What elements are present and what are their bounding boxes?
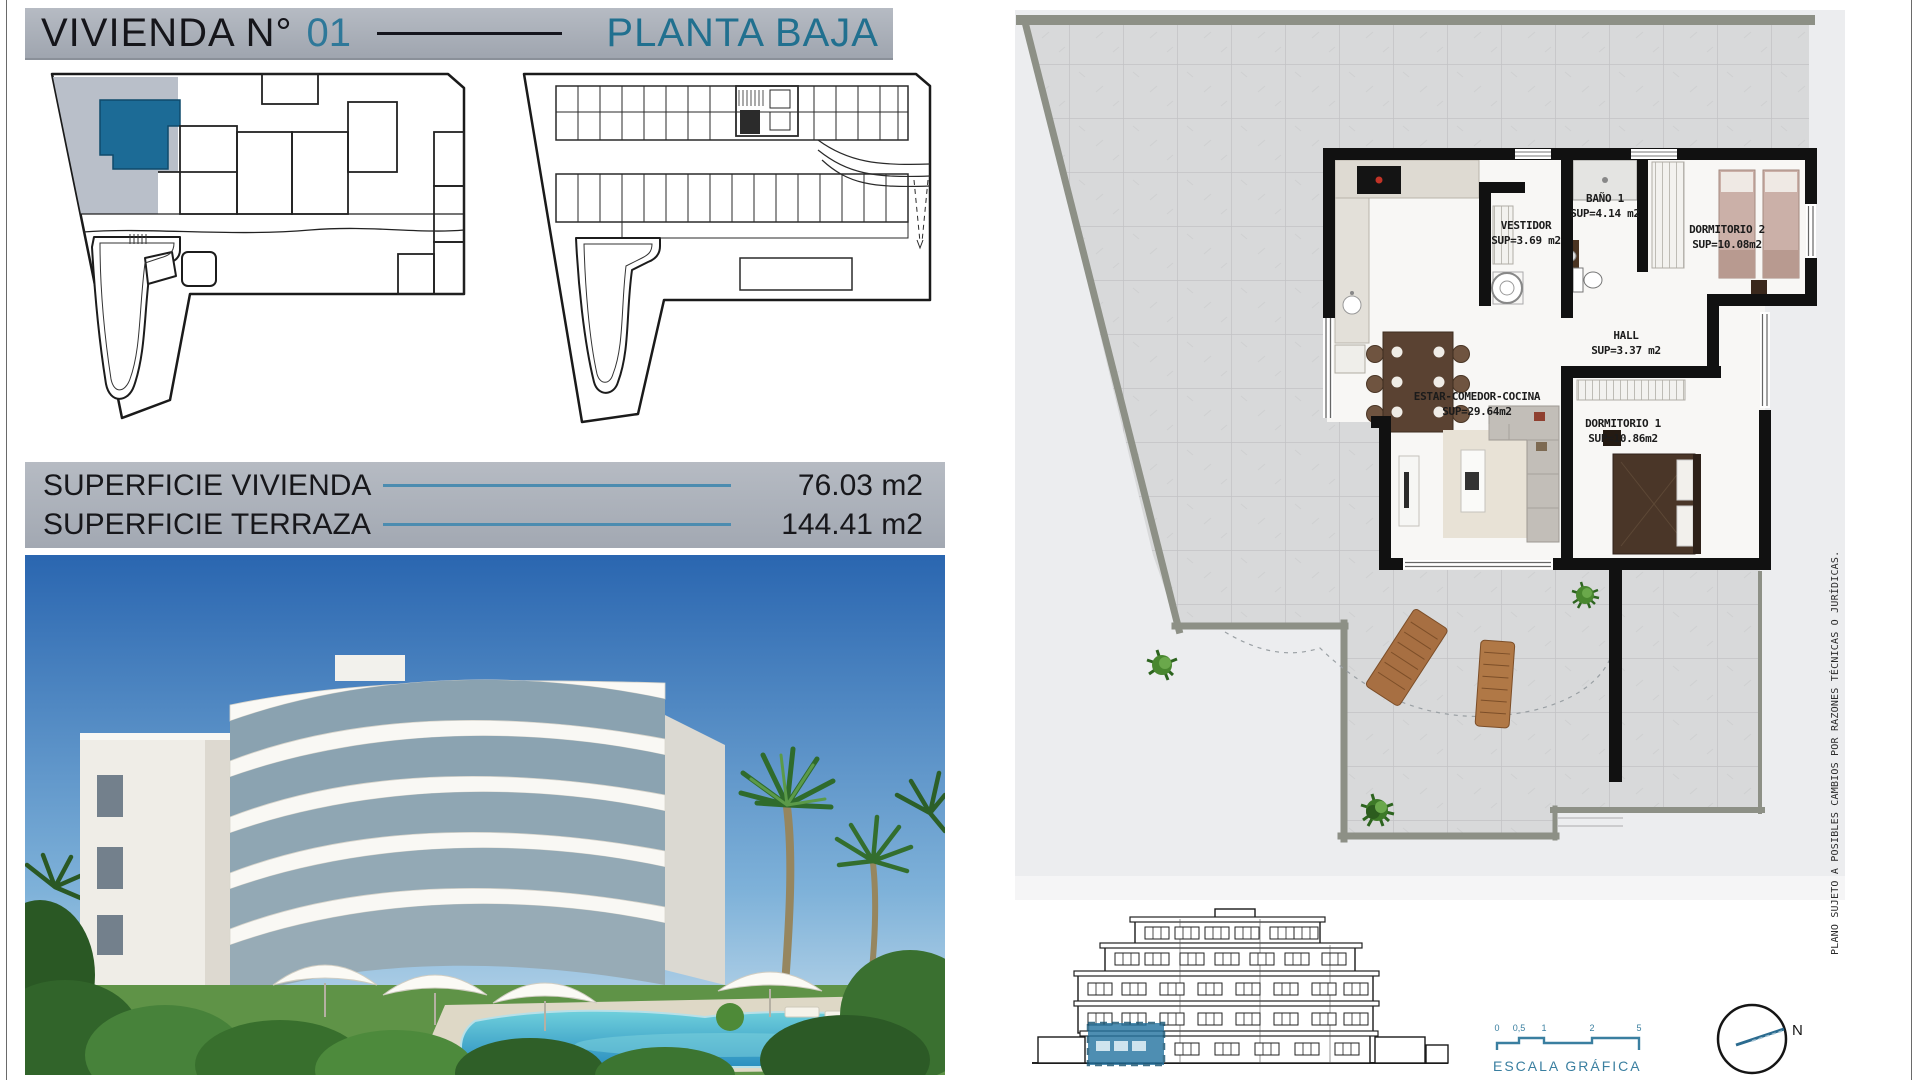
building-photo	[25, 555, 945, 1075]
unit-title: VIVIENDA N°	[25, 11, 293, 56]
surface-value: 76.03 m2	[753, 469, 945, 503]
surface-row-terraza: SUPERFICIE TERRAZA 144.41 m2	[25, 506, 945, 543]
brochure-page: VIVIENDA N° 01 PLANTA BAJA	[0, 0, 1918, 1080]
svg-text:0,5: 0,5	[1513, 1023, 1526, 1033]
scale-label: ESCALA GRÁFICA	[1493, 1058, 1663, 1074]
garage-plan-drawing	[518, 62, 943, 440]
room-label-vestidor: VESTIDOR SUP=3.69 m2	[1491, 218, 1561, 248]
scale-bar: 0 0,5 1 2 5	[1493, 1022, 1663, 1056]
unit-number: 01	[307, 11, 352, 56]
scale-widget: 0 0,5 1 2 5 ESCALA GRÁFICA	[1493, 1022, 1663, 1074]
svg-text:0: 0	[1494, 1023, 1499, 1033]
svg-text:1: 1	[1541, 1023, 1546, 1033]
surface-row-vivienda: SUPERFICIE VIVIENDA 76.03 m2	[25, 467, 945, 504]
surface-value: 144.41 m2	[753, 508, 945, 542]
floor-plan: VESTIDOR SUP=3.69 m2 BAÑO 1 SUP=4.14 m2 …	[1015, 10, 1845, 900]
surface-label: SUPERFICIE VIVIENDA	[25, 469, 373, 503]
svg-text:5: 5	[1636, 1023, 1641, 1033]
room-label-bano1: BAÑO 1 SUP=4.14 m2	[1570, 191, 1640, 221]
floor-level-label: PLANTA BAJA	[606, 11, 893, 56]
elevation-drawing	[1030, 905, 1450, 1077]
floor-plan-drawing	[1015, 10, 1845, 900]
north-arrow-icon: N	[1712, 995, 1812, 1080]
svg-text:2: 2	[1589, 1023, 1594, 1033]
header-bar: VIVIENDA N° 01 PLANTA BAJA	[25, 8, 893, 60]
room-label-dormitorio1: DORMITORIO 1 SUP=10.86m2	[1585, 416, 1661, 446]
surface-summary-bar: SUPERFICIE VIVIENDA 76.03 m2 SUPERFICIE …	[25, 462, 945, 548]
page-border-right	[1911, 0, 1912, 1080]
page-border-left	[6, 0, 7, 1080]
room-label-hall: HALL SUP=3.37 m2	[1591, 328, 1661, 358]
legal-note: PLANO SUJETO A POSIBLES CAMBIOS POR RAZO…	[1830, 477, 1841, 955]
room-label-dormitorio2: DORMITORIO 2 SUP=10.08m2	[1689, 222, 1765, 252]
room-label-estar: ESTAR-COMEDOR-COCINA SUP=29.64m2	[1414, 389, 1540, 419]
svg-text:N: N	[1792, 1022, 1803, 1039]
header-divider-line	[377, 32, 562, 35]
site-plan-drawing	[30, 62, 475, 440]
leader-line	[383, 484, 731, 487]
surface-label: SUPERFICIE TERRAZA	[25, 508, 373, 542]
highlighted-unit	[1088, 1023, 1164, 1065]
leader-line	[383, 523, 731, 526]
